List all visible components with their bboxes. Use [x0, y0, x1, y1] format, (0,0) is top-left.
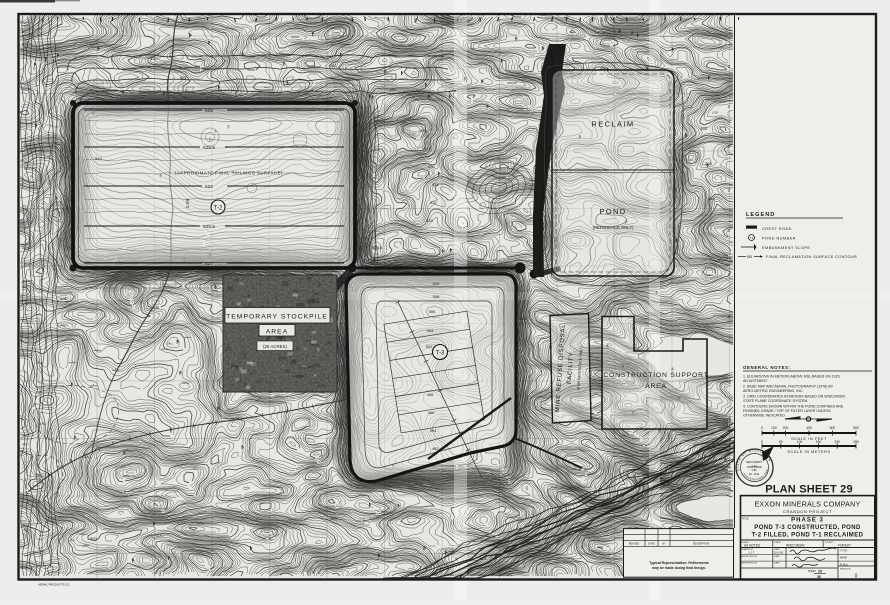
svg-text:APPROVED BY: APPROVED BY	[742, 555, 758, 558]
svg-text:510: 510	[95, 156, 102, 161]
svg-text:AERO-METRIC ENGINEERING, INC.: AERO-METRIC ENGINEERING, INC.	[743, 389, 804, 393]
svg-text:7-10: 7-10	[751, 464, 757, 468]
svg-text:SHEET: SHEET	[808, 570, 817, 573]
svg-text:COUNTY: COUNTY	[825, 542, 835, 544]
svg-text:4. CONTOURS SHOWN WITHIN THE P: 4. CONTOURS SHOWN WITHIN THE POND CONFIN…	[743, 405, 844, 409]
svg-text:BY: BY	[662, 543, 666, 546]
svg-text:496: 496	[428, 410, 435, 415]
svg-text:516: 516	[708, 196, 715, 201]
svg-text:FOREST: FOREST	[838, 544, 851, 548]
svg-text:AREA: AREA	[266, 329, 289, 336]
svg-text:TEMPORARY STOCKPILE: TEMPORARY STOCKPILE	[226, 314, 328, 321]
svg-text:51: 51	[727, 188, 731, 192]
svg-text:CREST ROAD: CREST ROAD	[762, 227, 792, 231]
svg-text:528: 528	[420, 128, 427, 133]
svg-text:PLAN SHEET 29: PLAN SHEET 29	[765, 484, 853, 496]
svg-text:EMBANKMENT SLOPE: EMBANKMENT SLOPE	[762, 246, 810, 250]
svg-text:250: 250	[853, 440, 859, 444]
svg-text:0.5%: 0.5%	[185, 198, 190, 208]
svg-text:506: 506	[429, 309, 436, 314]
svg-text:515: 515	[250, 36, 257, 41]
svg-text:DESCRIPTION: DESCRIPTION	[693, 543, 710, 546]
svg-text:510: 510	[433, 281, 440, 286]
svg-text:29: 29	[818, 570, 822, 574]
svg-text:200: 200	[783, 426, 789, 430]
svg-text:WISCONSIN: WISCONSIN	[786, 544, 805, 548]
svg-text:800: 800	[853, 426, 859, 430]
svg-text:J J T: J J T	[748, 550, 755, 554]
svg-text:LEGEND: LEGEND	[746, 212, 775, 218]
svg-text:495: 495	[330, 516, 337, 521]
svg-text:51: 51	[727, 144, 731, 148]
svg-text:400: 400	[806, 426, 812, 430]
svg-text:502: 502	[426, 344, 433, 349]
svg-text:1. ELEVATIONS IN METERS ABOVE: 1. ELEVATIONS IN METERS ABOVE MSL BASED …	[743, 375, 840, 379]
svg-text:490: 490	[600, 66, 607, 71]
svg-text:T7/Al: T7/Al	[840, 549, 847, 553]
svg-text:may be made during final desig: may be made during final design.	[652, 566, 706, 570]
svg-text:ADJUSTMENT.: ADJUSTMENT.	[743, 379, 768, 383]
svg-text:SCALE IN METERS: SCALE IN METERS	[787, 450, 830, 454]
svg-text:POND T-3 CONSTRUCTED, POND: POND T-3 CONSTRUCTED, POND	[754, 525, 861, 531]
svg-text:552: 552	[330, 64, 336, 68]
svg-text:STATE: STATE	[774, 541, 781, 544]
svg-text:100: 100	[797, 440, 803, 444]
svg-text:504: 504	[427, 328, 434, 333]
svg-text:526: 526	[205, 184, 213, 190]
svg-text:51: 51	[727, 228, 731, 232]
svg-text:51: 51	[727, 104, 731, 108]
svg-text:529: 529	[424, 146, 431, 151]
svg-text:T-3: T-3	[436, 351, 445, 357]
svg-text:505: 505	[60, 296, 67, 301]
svg-text:508: 508	[705, 161, 712, 166]
svg-text:100: 100	[771, 426, 777, 430]
svg-text:DATE: DATE	[774, 555, 780, 558]
svg-text:500: 500	[520, 316, 527, 321]
svg-text:600: 600	[830, 426, 836, 430]
svg-text:522.5: 522.5	[372, 245, 383, 250]
svg-text:526.5: 526.5	[203, 224, 215, 230]
svg-text:530: 530	[428, 164, 435, 169]
svg-text:50: 50	[779, 440, 783, 444]
svg-text:527: 527	[205, 261, 213, 267]
svg-text:(25 ACRES): (25 ACRES)	[263, 344, 287, 349]
svg-text:CRANDON PROJECT: CRANDON PROJECT	[783, 509, 832, 514]
svg-text:520: 520	[150, 56, 157, 61]
svg-text:200: 200	[834, 440, 840, 444]
svg-text:AREA: AREA	[645, 383, 667, 390]
svg-text:GENERAL NOTES:: GENERAL NOTES:	[743, 365, 791, 370]
svg-text:FINAL RECLAMATION SURFACE C: FINAL RECLAMATION SURFACE CONTOUR	[766, 255, 857, 259]
svg-text:51: 51	[727, 272, 731, 276]
svg-text:CONSTRUCTION SUPPORT: CONSTRUCTION SUPPORT	[603, 372, 708, 379]
svg-text:551: 551	[747, 255, 753, 259]
svg-text:498: 498	[700, 126, 707, 131]
svg-text:3-86: 3-86	[751, 468, 757, 472]
svg-text:TITLE: TITLE	[742, 518, 749, 521]
svg-text:T-2: T-2	[214, 205, 223, 211]
svg-text:EXXON MINERALS COMPANY: EXXON MINERALS COMPANY	[754, 500, 860, 509]
svg-text:0: 0	[761, 426, 763, 430]
svg-text:505: 505	[480, 556, 487, 561]
svg-text:533: 533	[426, 218, 433, 223]
svg-text:POND: POND	[599, 207, 626, 216]
svg-text:531: 531	[432, 182, 439, 187]
svg-text:10-2-85: 10-2-85	[774, 551, 784, 555]
svg-text:Typical Representation: Refin: Typical Representation: Refinements	[649, 561, 709, 565]
svg-text:551: 551	[240, 52, 246, 56]
svg-text:REVISION: REVISION	[840, 569, 851, 571]
svg-text:0: 0	[761, 440, 763, 444]
svg-text:T-1: T-1	[750, 236, 754, 240]
svg-text:PHASE 3: PHASE 3	[791, 518, 824, 524]
svg-text:500: 500	[90, 536, 97, 541]
svg-text:553: 553	[180, 76, 186, 80]
svg-text:APPROVED BY: APPROVED BY	[742, 562, 758, 565]
svg-text:T-2 FILLED, POND T-1 RECLAIMED: T-2 FILLED, POND T-1 RECLAIMED	[752, 532, 864, 538]
svg-text:525.5: 525.5	[203, 145, 215, 151]
svg-text:3. GRID COORDINATES IN METERS: 3. GRID COORDINATES IN METERS BASED ON W…	[743, 395, 845, 399]
svg-text:498: 498	[427, 392, 434, 397]
svg-text:51: 51	[727, 314, 731, 318]
svg-text:2. BASE MAP AND AERIAL PHOTOGR: 2. BASE MAP AND AERIAL PHOTOGRAPHY (1978…	[743, 385, 834, 389]
svg-text:508: 508	[433, 294, 440, 299]
svg-text:FINISHED GRADE / TOP OF FILTER: FINISHED GRADE / TOP OF FILTER LAYER UNL…	[743, 409, 831, 413]
svg-text:AS NOTED: AS NOTED	[744, 544, 761, 548]
svg-text:494: 494	[430, 428, 437, 433]
svg-text:RECLAIM: RECLAIM	[591, 120, 634, 129]
svg-text:DATE: DATE	[648, 543, 655, 546]
svg-text:POND NUMBER: POND NUMBER	[762, 237, 796, 241]
svg-text:STATE PLANE COORDINATE SYSTEM.: STATE PLANE COORDINATE SYSTEM.	[743, 399, 808, 403]
svg-text:NEW PERMIT: NEW PERMIT	[746, 460, 763, 464]
svg-text:(REFERENCE ONLY): (REFERENCE ONLY)	[593, 225, 634, 230]
svg-text:RWE: RWE	[840, 556, 848, 560]
svg-text:51: 51	[727, 64, 731, 68]
svg-text:DATE: DATE	[774, 562, 780, 565]
svg-text:525: 525	[205, 108, 213, 114]
svg-text:532: 532	[430, 200, 437, 205]
svg-text:AERIAL PRODUCTS CO .: AERIAL PRODUCTS CO .	[38, 583, 71, 587]
svg-text:554: 554	[390, 88, 396, 92]
svg-text:(APPROXIMATE FINAL TAILINGS SU: (APPROXIMATE FINAL TAILINGS SURFACE)	[175, 171, 283, 176]
svg-text:No. 1234: No. 1234	[749, 472, 760, 476]
svg-text:REVISED: REVISED	[629, 543, 640, 546]
svg-text:OTHERWISE INDICATED.: OTHERWISE INDICATED.	[743, 414, 786, 418]
svg-text:150: 150	[816, 440, 822, 444]
